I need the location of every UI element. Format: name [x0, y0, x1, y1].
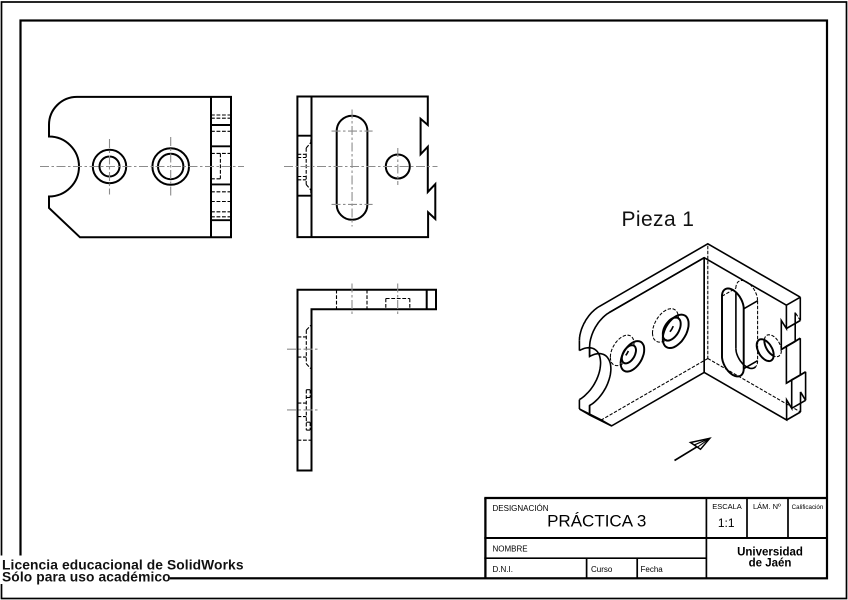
svg-text:PRÁCTICA 3: PRÁCTICA 3	[547, 512, 646, 531]
svg-text:1:1: 1:1	[718, 516, 735, 530]
svg-text:Fecha: Fecha	[641, 565, 664, 574]
svg-text:NOMBRE: NOMBRE	[493, 545, 528, 554]
svg-text:Curso: Curso	[591, 565, 613, 574]
svg-text:DESIGNACIÓN: DESIGNACIÓN	[493, 504, 549, 513]
svg-text:Calificación: Calificación	[792, 504, 824, 511]
svg-text:Sólo para uso académico: Sólo para uso académico	[2, 570, 171, 585]
svg-text:D.N.I.: D.N.I.	[493, 565, 513, 574]
svg-text:Pieza 1: Pieza 1	[622, 208, 695, 231]
svg-text:de Jaén: de Jaén	[749, 558, 792, 570]
svg-text:ESCALA: ESCALA	[712, 502, 742, 511]
svg-text:LÁM. Nº: LÁM. Nº	[753, 502, 781, 511]
